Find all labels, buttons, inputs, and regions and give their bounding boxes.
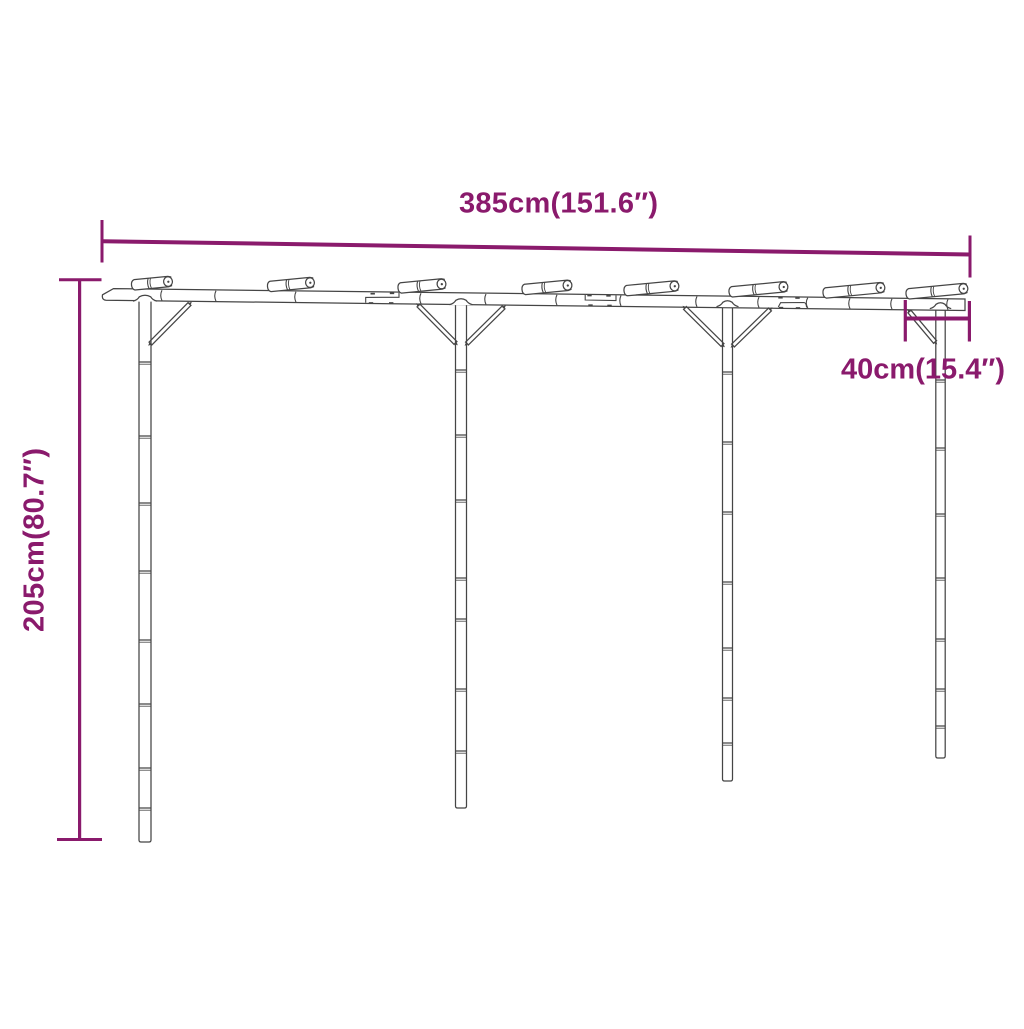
svg-text:205cm(80.7″): 205cm(80.7″) xyxy=(19,448,51,632)
svg-text:40cm(15.4″): 40cm(15.4″) xyxy=(841,354,1005,386)
svg-text:385cm(151.6″): 385cm(151.6″) xyxy=(459,188,658,220)
